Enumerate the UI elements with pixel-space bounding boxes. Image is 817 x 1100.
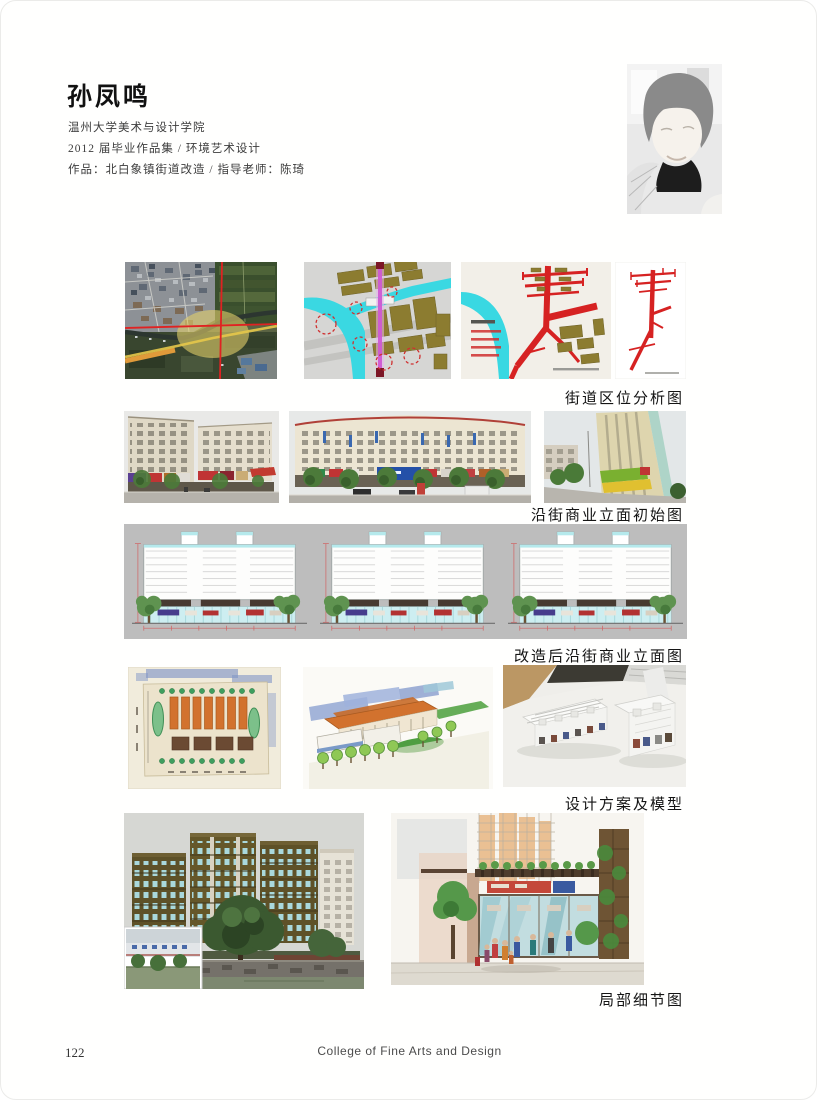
road-structure-image (615, 262, 686, 379)
model-photo-image (503, 665, 686, 787)
plan-diagram-image (304, 262, 451, 379)
caption-site-analysis: 街道区位分析图 (565, 387, 684, 408)
collection-line: 2012 届毕业作品集 / 环境艺术设计 (68, 140, 261, 156)
college-name: College of Fine Arts and Design (1, 1044, 817, 1058)
elevation-drawing (320, 532, 495, 631)
elevation-strip (124, 524, 687, 639)
marker-sketch-image (391, 813, 644, 985)
perspective-sketch-image (303, 667, 493, 789)
rendering-image (124, 813, 364, 989)
student-name: 孙凤鸣 (67, 77, 151, 113)
plan-sketch-image (128, 667, 281, 789)
satellite-image (125, 262, 277, 379)
street-photo-middle (289, 411, 531, 503)
caption-street-renovated: 改造后沿街商业立面图 (514, 645, 684, 666)
caption-scheme-model: 设计方案及模型 (565, 793, 684, 814)
elevation-drawing (132, 532, 307, 631)
student-photo (627, 64, 722, 214)
work-line: 作品：北白象镇街道改造 / 指导老师：陈琦 (68, 161, 305, 177)
street-photo-left (124, 411, 279, 503)
caption-detail-views: 局部细节图 (599, 989, 684, 1010)
analysis-diagram-image (461, 262, 611, 379)
caption-street-initial: 沿街商业立面初始图 (531, 504, 684, 525)
inset-photo (124, 927, 202, 989)
school-name: 温州大学美术与设计学院 (68, 119, 206, 135)
street-photo-right (544, 411, 686, 503)
elevation-drawing (508, 532, 683, 631)
portfolio-page: 孙凤鸣 温州大学美术与设计学院 2012 届毕业作品集 / 环境艺术设计 作品：… (0, 0, 817, 1100)
